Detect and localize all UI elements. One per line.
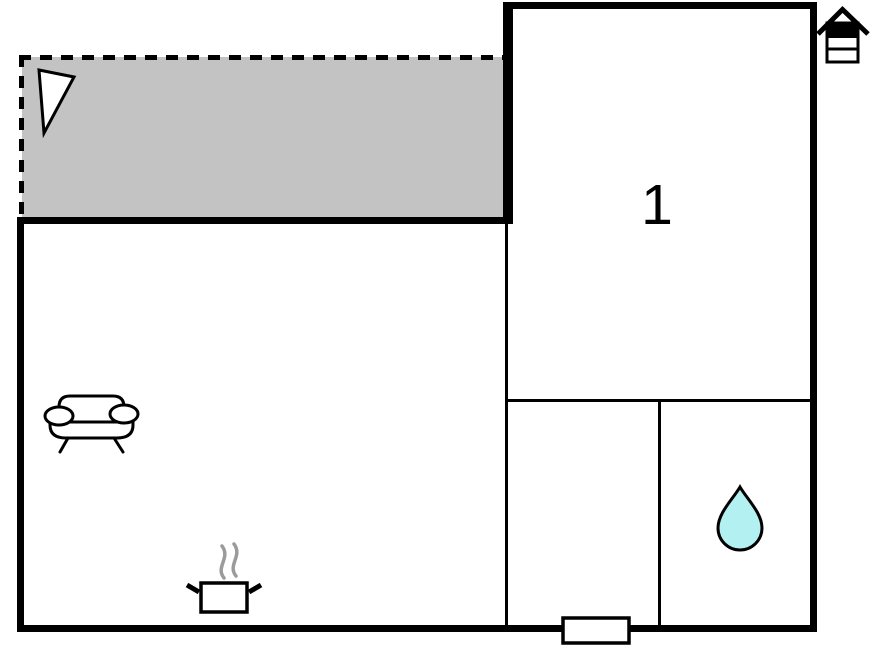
pot-body bbox=[201, 583, 247, 612]
wall-room1-bottom bbox=[508, 399, 810, 402]
sofa-leg-left bbox=[60, 438, 68, 452]
sofa-armrest-left bbox=[45, 407, 73, 425]
floor-plan: 1 bbox=[0, 0, 874, 652]
sofa-armrest-right bbox=[110, 405, 138, 423]
sofa-leg-right bbox=[114, 438, 123, 452]
wall-hall-bathroom-divider bbox=[658, 402, 661, 625]
floor-plan-canvas: 1 bbox=[0, 0, 874, 652]
pot-handle-left bbox=[187, 585, 199, 592]
wall-room1-top bbox=[503, 2, 817, 9]
steam-icon bbox=[233, 544, 237, 576]
terrace-area bbox=[22, 57, 505, 217]
wall-outer-bottom bbox=[17, 625, 817, 632]
water-drop-icon bbox=[718, 487, 762, 550]
pot-handle-right bbox=[249, 585, 261, 592]
sofa-icon bbox=[45, 396, 138, 452]
house-top-band bbox=[827, 23, 858, 38]
steam-icon bbox=[221, 546, 225, 578]
room-1-label: 1 bbox=[641, 173, 673, 237]
door-marker bbox=[563, 618, 629, 643]
house-orientation-icon bbox=[818, 10, 868, 63]
wall-outer-right bbox=[810, 2, 817, 632]
wall-outer-left bbox=[17, 217, 24, 632]
wall-room1-left bbox=[503, 2, 513, 224]
cooking-pot-icon bbox=[187, 544, 261, 612]
wall-living-top bbox=[17, 217, 513, 224]
wall-living-hall-divider bbox=[505, 224, 508, 625]
